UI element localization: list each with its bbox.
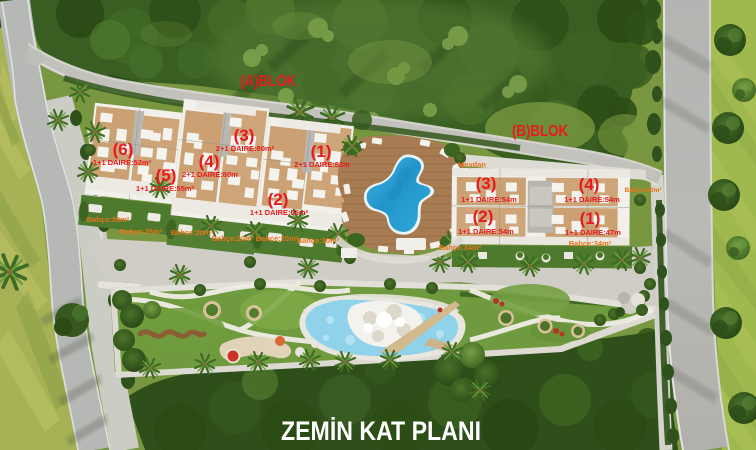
svg-text:1+1 DAIRE:54m: 1+1 DAIRE:54m xyxy=(564,195,620,204)
svg-text:1+1 DAIRE:52m²: 1+1 DAIRE:52m² xyxy=(93,158,152,167)
svg-text:1+1 DAIRE:54m: 1+1 DAIRE:54m xyxy=(461,195,517,204)
svg-text:1+1 DAIRE:55m²: 1+1 DAIRE:55m² xyxy=(136,184,195,193)
svg-text:(2): (2) xyxy=(268,190,289,209)
svg-text:Meydan: Meydan xyxy=(458,160,486,169)
svg-text:(1): (1) xyxy=(580,209,601,228)
svg-text:(3): (3) xyxy=(234,126,255,145)
svg-text:1+1 DAIRE:47m: 1+1 DAIRE:47m xyxy=(565,228,621,237)
svg-text:ZEMİN KAT PLANI: ZEMİN KAT PLANI xyxy=(281,416,481,446)
svg-text:1+1 DAIRE:54m: 1+1 DAIRE:54m xyxy=(458,227,514,236)
svg-text:(2): (2) xyxy=(473,207,494,226)
svg-text:2+1 DAIRE:80m: 2+1 DAIRE:80m xyxy=(182,170,238,179)
svg-text:1+1 DAIRE:55m²: 1+1 DAIRE:55m² xyxy=(250,208,309,217)
svg-text:2+1 DAIRE:80m²: 2+1 DAIRE:80m² xyxy=(216,144,275,153)
svg-text:2+1 DAIRE:82m: 2+1 DAIRE:82m xyxy=(294,160,350,169)
svg-text:Bahçe:20m²: Bahçe:20m² xyxy=(212,234,255,243)
svg-text:(5): (5) xyxy=(156,166,177,185)
svg-text:Bahçe:34m²: Bahçe:34m² xyxy=(569,239,612,248)
svg-text:(6): (6) xyxy=(113,140,134,159)
svg-text:(4): (4) xyxy=(579,175,600,194)
svg-text:(B)BLOK: (B)BLOK xyxy=(512,123,568,140)
svg-text:Bahçe:20m²: Bahçe:20m² xyxy=(256,234,299,243)
svg-text:(A)BLOK: (A)BLOK xyxy=(240,73,296,90)
svg-text:(1): (1) xyxy=(311,142,332,161)
svg-text:(4): (4) xyxy=(199,152,220,171)
svg-text:(3): (3) xyxy=(476,174,497,193)
svg-text:Bahçe:30m²: Bahçe:30m² xyxy=(87,215,130,224)
svg-text:Bahçe:40m²: Bahçe:40m² xyxy=(625,187,663,194)
svg-text:Bahçe:34m²: Bahçe:34m² xyxy=(439,243,482,252)
svg-text:Bahçe:20m²: Bahçe:20m² xyxy=(171,228,214,237)
svg-text:Bahçe:25m²: Bahçe:25m² xyxy=(120,227,163,236)
svg-text:Bahçe:30m²: Bahçe:30m² xyxy=(297,236,340,245)
